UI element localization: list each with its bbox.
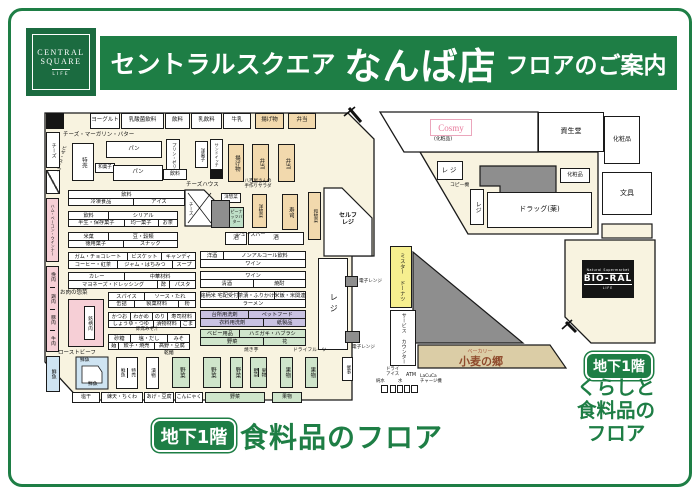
shelf-cell: キャンディ <box>161 253 195 260</box>
fruit-cell: 果物 <box>258 368 266 377</box>
tenant-mister-donut: ミスター ドーナツ <box>390 246 412 308</box>
floor-title-bottom: 食料品のフロア <box>240 416 443 456</box>
tenant-bioral: Natural Supermarket BIO-RAL LIFE <box>582 260 634 298</box>
shelf-cell: 徳用菓子 <box>69 241 123 248</box>
store-logo-frame: CENTRAL SQUARE LIFE <box>32 34 90 90</box>
area-western-deli: 洋惣菜 <box>252 194 267 228</box>
aisle-shelf-confectionery: ガム・チョコレートビスケットキャンディコーヒー・紅茶ジャム・はちみつスープ <box>68 252 196 269</box>
tenant-shiseido: 資生堂 <box>538 112 604 152</box>
label-water: 水 <box>398 379 402 384</box>
shelf-cell: ハミガキ・ハブラシ <box>239 330 305 337</box>
shelf-cell: ベビー用品 <box>201 330 239 337</box>
shelf-cell: 衣料用洗剤 <box>201 319 263 326</box>
area-brand-meat: 銘柄肉 <box>84 306 95 340</box>
aisle-shelf-condiments-1: カレー中華材料マヨネーズ・ドレッシング酢パスタ <box>68 272 196 289</box>
wall-corner-block <box>46 113 64 129</box>
meat-cell: 牛肉 <box>50 330 55 351</box>
shelf-cell: 台所用洗剤 <box>201 311 248 318</box>
shelf-cell: 均一菓子 <box>124 220 158 227</box>
label-dry-ice: ドライ アイス <box>386 367 399 377</box>
vegetable-cell: 野菜 <box>251 368 258 377</box>
aisle-shelf-condiments-2: スパイスソース・たれ缶詰製菓材料粉 <box>108 292 196 308</box>
label-self-checkout: セルフ レジ <box>330 213 366 227</box>
label-fish-bottom: 鮮魚 <box>88 382 98 388</box>
label-meat-deli: お肉の惣菜 <box>60 290 88 296</box>
area-fried-food-2: 揚げ物 <box>228 144 244 182</box>
shelf-cell: スープ <box>172 261 195 268</box>
aisle-shelf-rice-ramen: 銘柄米 宅配受付茶漬・ふりかけ米飯・米関連ラーメン <box>200 291 306 308</box>
drug-register-2: レジ <box>470 189 484 225</box>
label-cheese-house: チーズハウス <box>186 182 219 188</box>
shelf-cell: 麺 <box>109 343 118 350</box>
label-roast-beef: ローストビーフ <box>58 350 96 356</box>
area-bento-1: 弁当 <box>252 144 269 182</box>
meat-cell: 鶏肉 <box>50 287 55 308</box>
aisle-shelf-liquor-1: 洋酒ノンアルコール飲料ワイン <box>200 251 306 268</box>
label-pure-water: 純水 <box>376 379 385 384</box>
water-machine <box>381 385 388 393</box>
shelf-cell: ごま <box>180 321 195 328</box>
area-milk-drinks: 乳飲料 <box>191 113 222 129</box>
area-milk: 牛乳 <box>223 113 251 129</box>
sale-cell: 特売 <box>127 368 138 377</box>
shelf-cell: ノンアルコール飲料 <box>223 252 305 259</box>
area-vegetables-1: 野菜 <box>172 357 190 388</box>
aisle-shelf-seasoning: 砂糖塩・だしみそ麺餃子・焼売高野・豆腐 <box>108 334 190 350</box>
area-drugstore: ドラッグ(薬) <box>487 192 592 228</box>
shelf-cell: 製菓材料 <box>134 301 179 308</box>
floor-badge-bottom: 地下1階 <box>152 419 236 452</box>
area-sushi: 寿司 <box>282 194 298 230</box>
shelf-cell: 高野・豆腐 <box>154 343 189 350</box>
drug-register: レジ <box>437 161 463 180</box>
logo-text-central: CENTRAL <box>37 48 84 57</box>
label-copy-machine: コピー機 <box>450 183 469 189</box>
microwave-block <box>345 276 358 287</box>
store-logo: CENTRAL SQUARE LIFE <box>26 28 96 96</box>
charge-machine <box>411 385 418 393</box>
label-juice-bar: ジュースバー <box>236 233 265 239</box>
shelf-cell: 銘柄米 宅配受付 <box>201 292 238 299</box>
area-peanut-butter: ピーナッツバター <box>229 207 244 228</box>
area-cosmetics-right: 化粧品 <box>604 116 640 164</box>
area-wagashi: 和菓子 <box>95 163 115 173</box>
shelf-cell: ペットフード <box>248 311 305 318</box>
shelf-cell: 半生・保存菓子 <box>69 220 124 227</box>
label-cosmy-cosmetics: (化粧品) <box>434 137 452 143</box>
shelf-cell: ジャム・はちみつ <box>117 261 172 268</box>
microwave-block <box>345 331 360 343</box>
tenant-cosmy: Cosmy <box>430 119 472 136</box>
shelf-cell: 焼酎 <box>253 280 306 287</box>
shelf-cell: ワイン <box>201 260 305 267</box>
area-drink-small: 飲料 <box>163 169 187 180</box>
shelf-cell: 花 <box>263 338 305 345</box>
shelf-cell: アイス <box>133 199 184 206</box>
floor-guide-poster: CENTRAL SQUARE LIFE セントラルスクエア なんば店 フロアのご… <box>0 0 700 495</box>
shelf-cell: 紙製品 <box>263 319 305 326</box>
shelf-cell: お茶 <box>158 220 177 227</box>
shelf-cell: 缶詰 <box>109 301 134 308</box>
area-fruit-wall: 果物 <box>272 392 302 403</box>
water-machine <box>390 385 396 393</box>
right-strip-block <box>602 224 652 238</box>
meat-cell: 挽肉 <box>50 267 55 287</box>
label-cheese-vertical: チーズ <box>188 202 193 224</box>
meat-cell: 豚肉 <box>50 309 55 330</box>
shelf-cell: マヨネーズ・ドレッシング <box>69 281 157 288</box>
shelf-cell: ワイン <box>201 272 305 279</box>
label-fish-top: 鮮魚 <box>80 358 90 364</box>
aisle-shelf-frozen: 飲料冷凍食品アイス <box>68 190 185 206</box>
area-bento: 弁当 <box>288 113 316 129</box>
aisle-shelf-snack-2: 米菓豆・穀類徳用菓子スナック <box>68 232 178 248</box>
shelf-cell: 米飯・米関連 <box>274 292 305 299</box>
label-atm: ATM <box>406 373 416 379</box>
label-dried-fruit: ドライフルーツ <box>293 348 326 354</box>
area-vegetables-3: 野菜 <box>230 357 243 388</box>
shelf-cell: パスタ <box>169 281 195 288</box>
area-fish-paste: 練天・ちくわ <box>101 392 143 403</box>
tenant-bakery-komugi-no-sato: 小麦の郷 <box>426 353 536 369</box>
aisle-shelf-dried-goods: かつおわかめのり寿司材料しょうゆ・つゆ漬物材料ごま <box>108 312 196 328</box>
floor-title-right: くらしと 食料品の フロア <box>566 377 666 445</box>
label-greengrocer-salad: 八百屋さんの 手作りサラダ <box>238 179 278 189</box>
sandwich-end-block <box>210 170 223 179</box>
label-dairy: チーズ・マーガリン・バター <box>63 132 134 138</box>
area-fried-food: 揚げ物 <box>255 113 284 129</box>
shelf-cell: 粉 <box>178 301 195 308</box>
shelf-cell: スナック <box>123 241 178 248</box>
area-ham-bacon: ハム・ベーコン・ウインナー <box>46 198 59 262</box>
area-stationery: 文具 <box>602 172 652 215</box>
service-counter: サービス カウンター <box>390 310 416 366</box>
bioral-logo-text: BIO-RAL <box>584 274 632 285</box>
area-japanese-deli: 和惣菜 <box>308 192 321 240</box>
charge-machine <box>404 385 410 393</box>
area-fruit-1: 果物 <box>280 357 293 388</box>
area-lactic-drinks: 乳酸菌飲料 <box>121 113 164 129</box>
shelf-cell: 中華材料 <box>124 273 195 280</box>
label-instant-miso: 即席みそ汁 <box>136 327 159 332</box>
area-pickles: 漬物 <box>146 357 159 389</box>
area-yogurt: ヨーグルト <box>90 113 120 129</box>
shelf-cell: ラーメン <box>201 300 305 307</box>
fish-corner-cutout <box>82 366 102 383</box>
area-special-sale: 特売 <box>72 143 94 181</box>
label-lacuca-charge: LaCuCa チャージ機 <box>420 374 442 384</box>
area-meat-wall: 挽肉鶏肉豚肉牛肉 <box>46 266 59 352</box>
area-vegetables-wall: 野菜 <box>205 392 265 403</box>
title-banner: セントラルスクエア なんば店 フロアのご案内 <box>100 36 677 90</box>
area-fish-wall: 鮮魚 <box>46 356 60 392</box>
atm-machine <box>397 385 403 393</box>
shelf-cell: 野菜 <box>201 338 263 345</box>
shelf-cell: 清酒 <box>201 280 253 287</box>
area-bread-2: パン <box>113 165 163 181</box>
area-veg-fruit: 野菜 果物 <box>250 357 267 388</box>
area-drinks: 飲料 <box>165 113 190 129</box>
area-cosmetics-small: 化粧品 <box>560 168 590 183</box>
area-fruit-2: 果物 <box>305 357 318 388</box>
title-suffix: フロアのご案内 <box>506 46 667 80</box>
area-salted-dried: 塩干 <box>72 392 100 403</box>
title-store: セントラルスクエア <box>110 45 335 81</box>
aisle-shelf-liquor-2: ワイン清酒焼酎 <box>200 271 306 288</box>
label-baked-sweet-potato: 焼き芋 <box>244 348 258 354</box>
shelf-cell: 洋酒 <box>201 252 223 259</box>
logo-text-life: LIFE <box>52 69 69 77</box>
aisle-shelf-daily-goods: 台所用洗剤ペットフード衣料用洗剤紙製品 <box>200 310 306 327</box>
fish-cell: 鮮魚 <box>117 368 127 377</box>
bioral-sub-text: LIFE <box>603 286 614 290</box>
shelf-cell: コーヒー・紅茶 <box>69 261 117 268</box>
checkout-registers: レジ <box>318 258 348 350</box>
shelf-cell: ガム・チョコレート <box>69 253 127 260</box>
shelf-cell: カレー <box>69 273 124 280</box>
area-konnyaku: こんにゃく <box>175 392 203 403</box>
area-event: 催事 <box>342 357 353 381</box>
shelf-cell: 冷凍食品 <box>69 199 133 206</box>
aisle-shelf-snack-1: 飲料シリアル半生・保存菓子均一菓子お茶 <box>68 211 178 227</box>
escalator-triangle <box>413 252 523 343</box>
label-microwave-1: 電子レンジ <box>359 279 382 284</box>
area-bread-1: パン <box>106 141 162 158</box>
area-western-sweets: 洋菓子 <box>195 141 208 168</box>
shelf-cell: 餃子・焼売 <box>118 343 153 350</box>
shelf-cell: 茶漬・ふりかけ <box>238 292 274 299</box>
shelf-cell: 酢 <box>157 281 169 288</box>
area-fish-sale: 鮮魚 特売 <box>116 357 138 389</box>
label-microwave-2: 電子レンジ <box>352 345 375 350</box>
deli-counter-block <box>211 200 230 228</box>
area-bento-2: 弁当 <box>278 144 295 182</box>
area-sandwich: サンドイッチ <box>210 139 223 170</box>
area-vegetables-2: 野菜 <box>203 357 221 388</box>
shelf-cell: ビスケット <box>127 253 161 260</box>
logo-text-square: SQUARE <box>40 57 81 66</box>
label-dried-noodles: 乾麺 <box>164 351 174 357</box>
title-store-name: なんば店 <box>345 36 497 90</box>
aisle-shelf-baby-goods: ベビー用品ハミガキ・ハブラシ野菜花 <box>200 329 306 346</box>
area-tofu: あげ・豆腐 <box>144 392 174 403</box>
